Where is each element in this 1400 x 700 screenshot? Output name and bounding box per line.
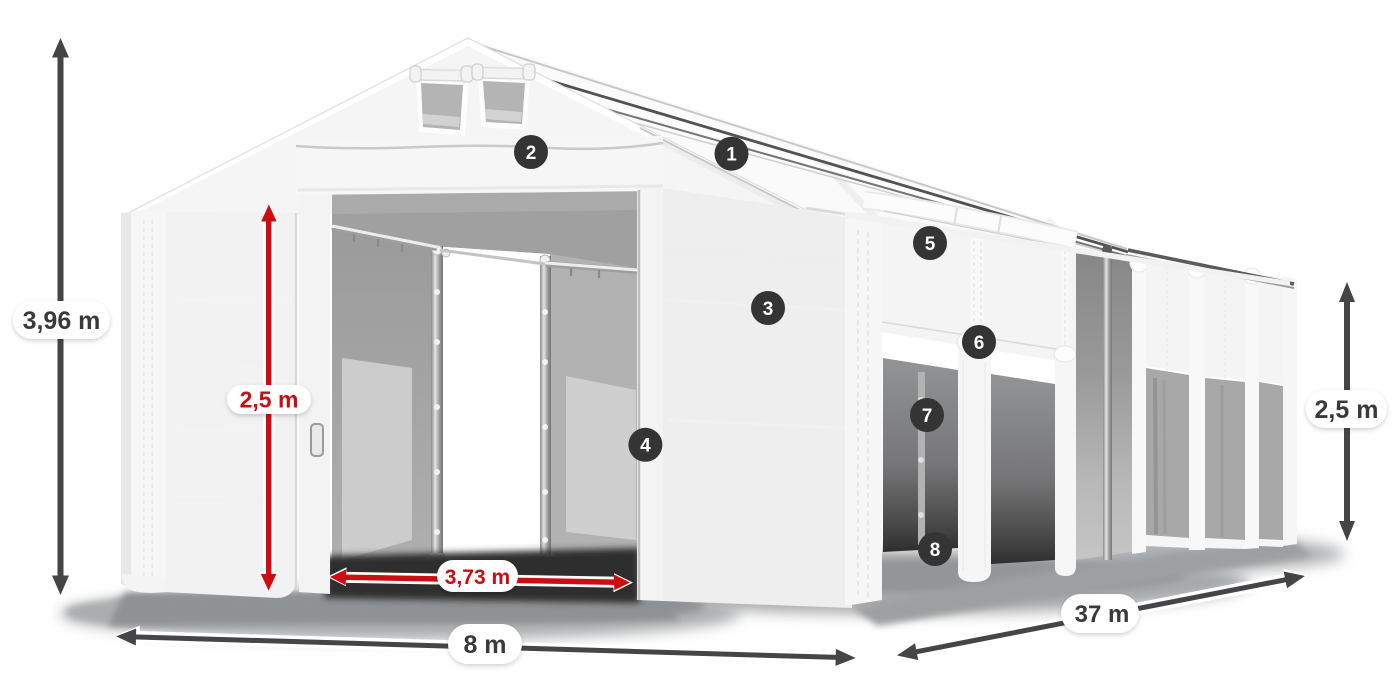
- svg-text:8 m: 8 m: [463, 631, 506, 659]
- svg-text:3,96 m: 3,96 m: [23, 307, 101, 335]
- svg-text:2,5 m: 2,5 m: [240, 387, 299, 413]
- svg-text:37 m: 37 m: [1075, 601, 1130, 628]
- svg-text:6: 6: [974, 333, 985, 354]
- svg-text:3: 3: [763, 299, 774, 320]
- svg-text:3,73 m: 3,73 m: [445, 566, 510, 589]
- svg-text:5: 5: [925, 234, 936, 255]
- svg-text:4: 4: [640, 436, 651, 457]
- svg-text:2: 2: [526, 143, 537, 164]
- svg-text:8: 8: [930, 540, 941, 561]
- svg-text:2,5 m: 2,5 m: [1315, 396, 1379, 424]
- svg-text:7: 7: [922, 406, 933, 427]
- svg-text:1: 1: [726, 145, 737, 166]
